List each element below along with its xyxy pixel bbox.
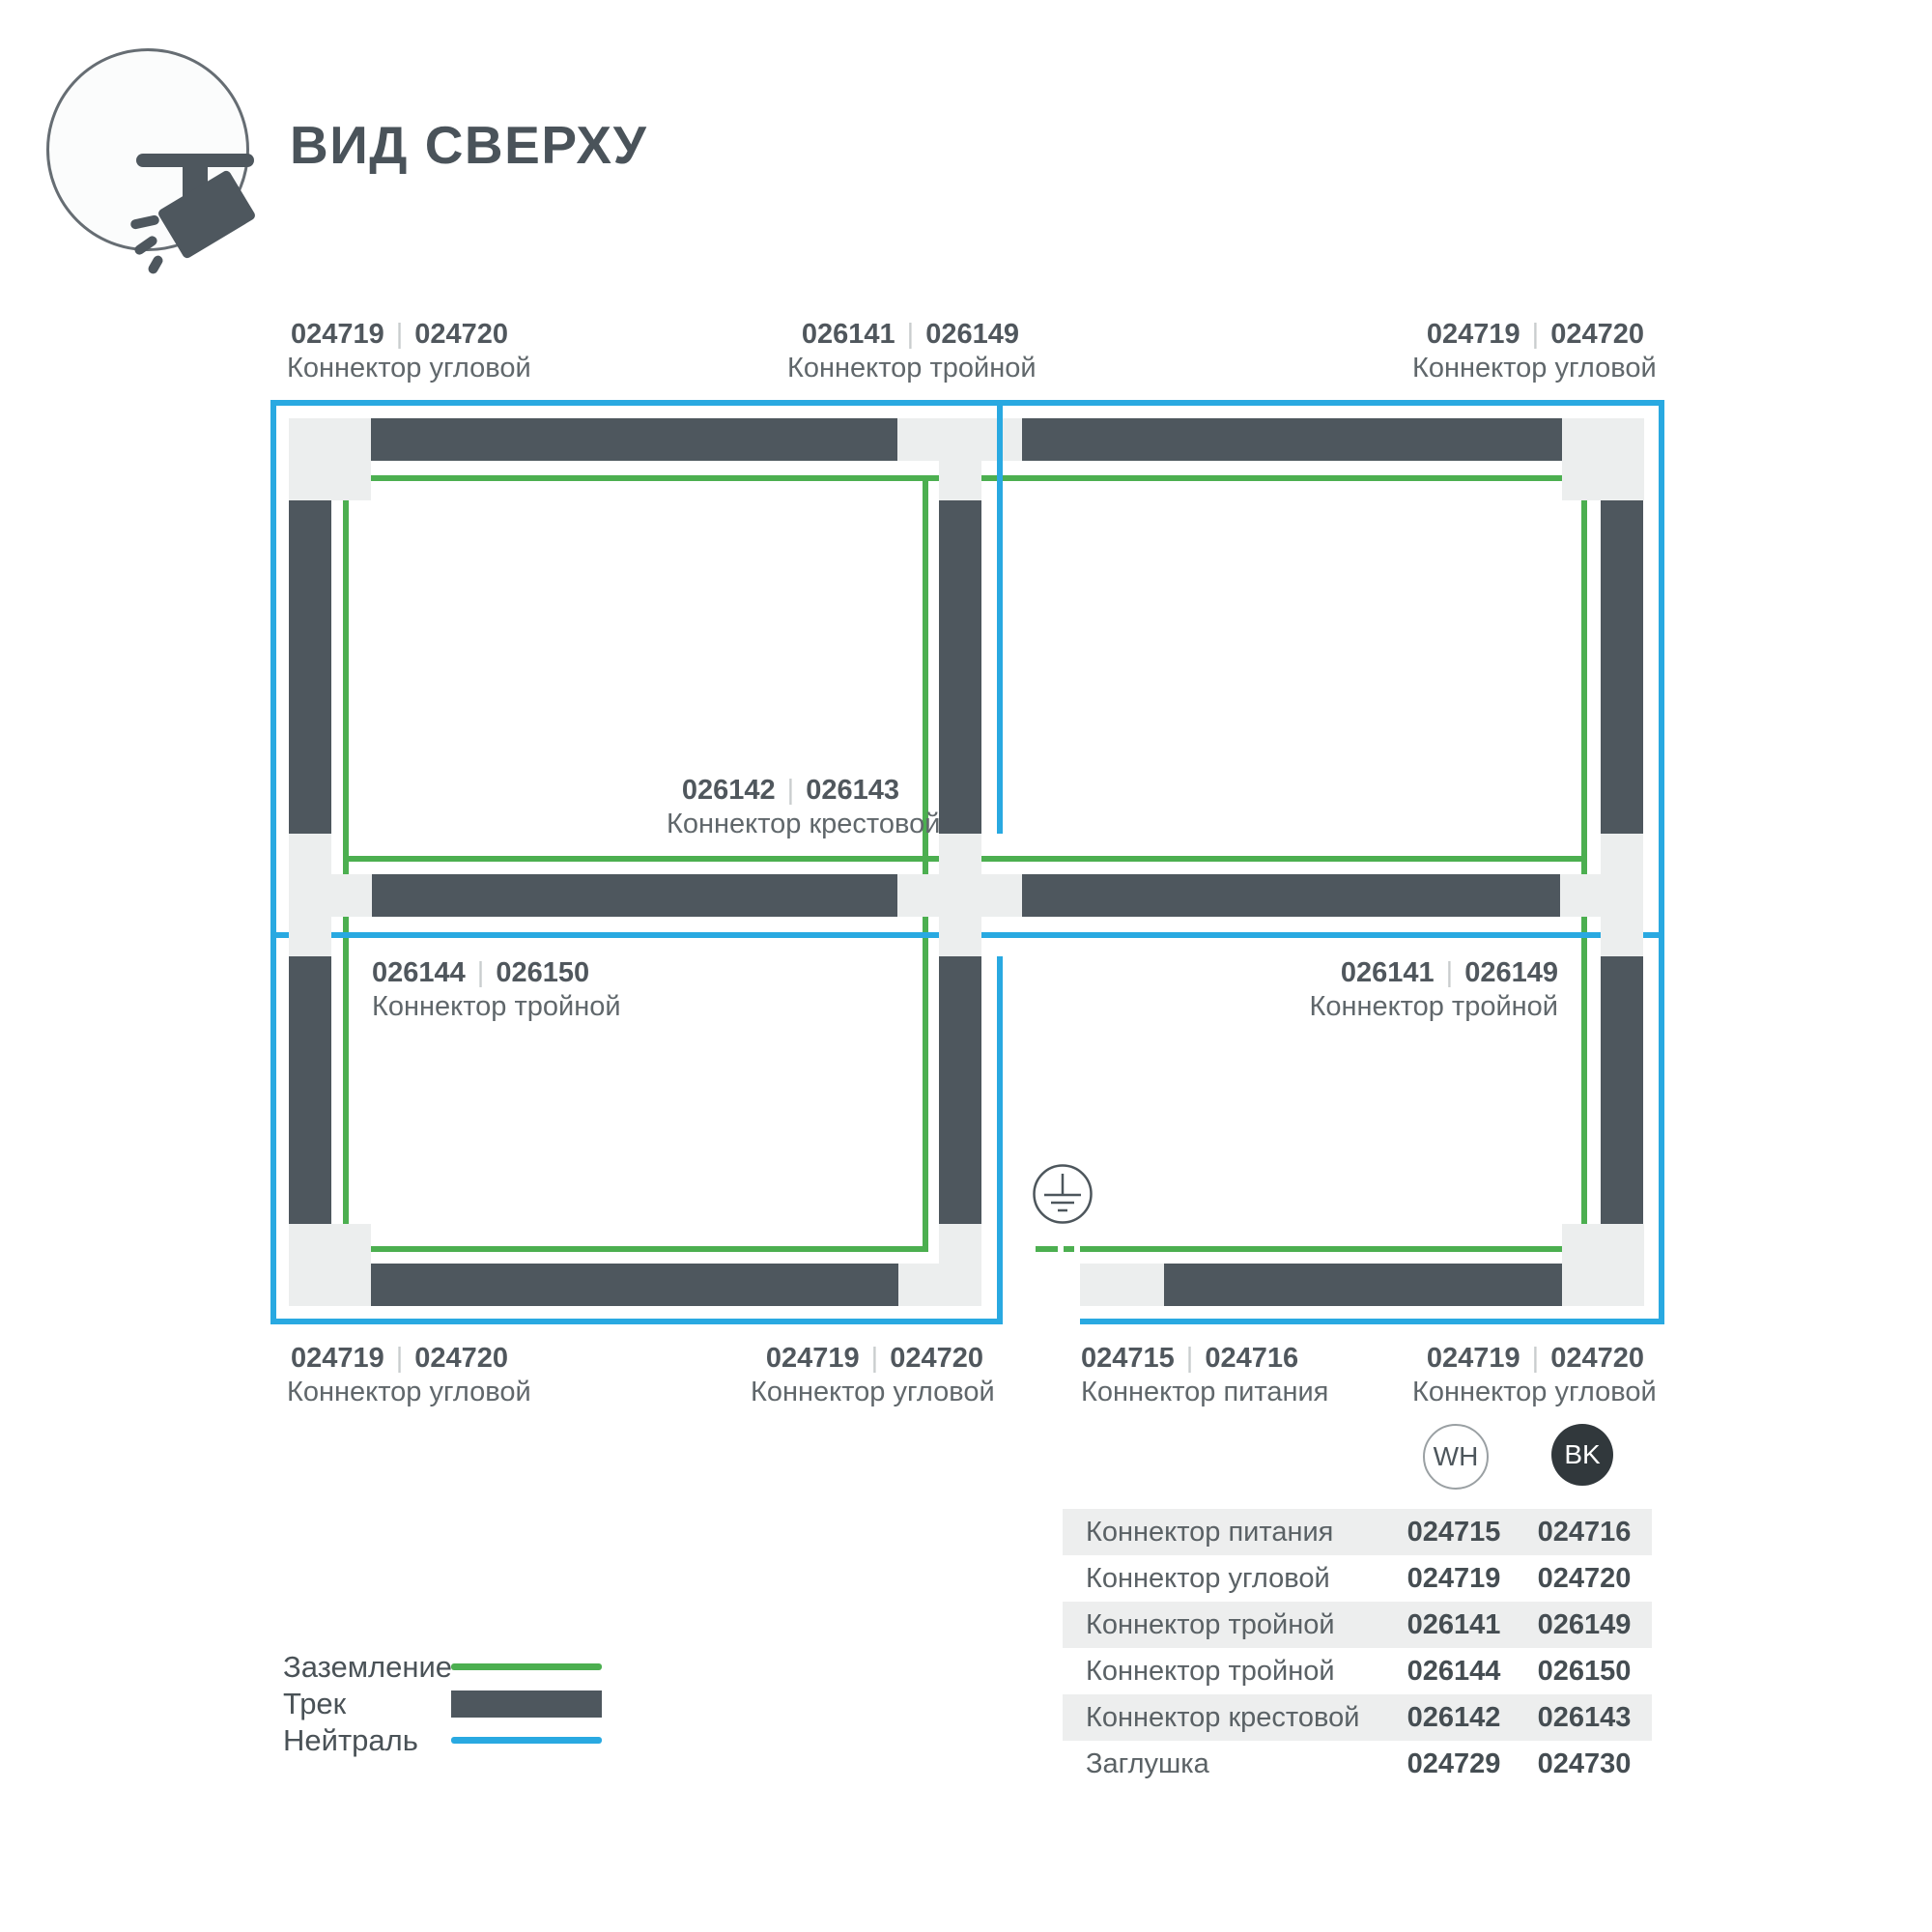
neutral-line-right	[1659, 400, 1664, 1324]
part-name-cell: Коннектор питания	[1063, 1517, 1391, 1548]
callout-corner-connector: 024719|024720 Коннектор угловой	[751, 1343, 983, 1407]
callout-corner-connector: 024719|024720 Коннектор угловой	[1412, 1343, 1644, 1407]
power-connector	[1080, 1264, 1164, 1306]
corner-connector	[289, 418, 371, 500]
track-segment	[1164, 1264, 1562, 1306]
track-segment	[1022, 874, 1561, 917]
callout-triple-connector: 026141|026149 Коннектор тройной	[787, 319, 1019, 384]
wh-code-cell: 024715	[1391, 1517, 1517, 1548]
part-name-cell: Заглушка	[1063, 1748, 1391, 1780]
triple-connector-left	[289, 834, 331, 956]
corner-connector	[1562, 1224, 1644, 1306]
part-name: Коннектор тройной	[1288, 991, 1558, 1022]
neutral-line-bottom-left	[270, 1319, 1003, 1324]
callout-triple-connector: 026141|026149 Коннектор тройной	[1288, 957, 1558, 1022]
part-name: Коннектор питания	[1081, 1377, 1351, 1407]
corner-connector-bottom-center	[898, 1264, 939, 1306]
ground-line-bottom-left	[343, 1246, 928, 1252]
code-separator: |	[1520, 1343, 1551, 1374]
wh-code-cell: 024719	[1391, 1563, 1517, 1595]
parts-table: Коннектор питания 024715 024716 Коннекто…	[1063, 1509, 1652, 1787]
light-ray-icon	[132, 234, 158, 256]
corner-connector	[289, 1224, 371, 1306]
color-badge-black: BK	[1551, 1424, 1613, 1486]
triple-connector-right	[1601, 834, 1643, 956]
legend-ground-swatch	[451, 1663, 602, 1670]
callout-cross-connector: 026142|026143 Коннектор крестовой	[667, 775, 899, 839]
neutral-line-bottom-right	[1080, 1319, 1664, 1324]
neutral-line-top	[270, 400, 1664, 406]
part-name-cell: Коннектор тройной	[1063, 1609, 1391, 1641]
table-row: Коннектор угловой 024719 024720	[1063, 1555, 1652, 1602]
callout-corner-connector: 024719|024720 Коннектор угловой	[287, 319, 512, 384]
legend-label-ground: Заземление	[283, 1650, 452, 1685]
legend-label-neutral: Нейтраль	[283, 1723, 418, 1758]
part-codes: 024719|024720	[1412, 1343, 1644, 1374]
part-codes: 024715|024716	[1081, 1343, 1351, 1374]
triple-connector-top	[939, 461, 981, 500]
bk-code-cell: 024720	[1517, 1563, 1652, 1595]
ground-line-bottom-right	[1080, 1246, 1587, 1252]
callout-corner-connector: 024719|024720 Коннектор угловой	[287, 1343, 512, 1407]
table-row: Коннектор тройной 026144 026150	[1063, 1648, 1652, 1694]
code-separator: |	[776, 775, 807, 806]
legend-neutral-swatch	[451, 1737, 602, 1744]
bk-code-cell: 024716	[1517, 1517, 1652, 1548]
ground-line-dash	[1064, 1246, 1074, 1252]
bk-code-cell: 026143	[1517, 1702, 1652, 1734]
color-badge-white: WH	[1423, 1424, 1489, 1490]
part-name-cell: Коннектор угловой	[1063, 1563, 1391, 1595]
table-row: Коннектор питания 024715 024716	[1063, 1509, 1652, 1555]
bk-code-cell: 026150	[1517, 1656, 1652, 1688]
track-segment	[1022, 418, 1562, 461]
earth-ground-icon	[1032, 1163, 1094, 1225]
code-separator: |	[895, 319, 926, 350]
table-row: Заглушка 024729 024730	[1063, 1741, 1652, 1787]
part-name: Коннектор крестовой	[667, 809, 899, 839]
part-codes: 026141|026149	[787, 319, 1019, 350]
code-separator: |	[860, 1343, 891, 1374]
triple-connector-top	[897, 418, 1022, 461]
track-segment	[939, 500, 981, 834]
part-name: Коннектор тройной	[787, 353, 1019, 384]
light-ray-icon	[129, 214, 159, 230]
legend-track-swatch	[451, 1690, 602, 1718]
wh-code-cell: 026142	[1391, 1702, 1517, 1734]
part-name: Коннектор угловой	[287, 353, 512, 384]
code-separator: |	[1520, 319, 1551, 350]
neutral-line-middle-vertical	[997, 400, 1003, 834]
wh-code-cell: 024729	[1391, 1748, 1517, 1780]
part-name: Коннектор угловой	[1412, 353, 1644, 384]
callout-triple-connector: 026144|026150 Коннектор тройной	[372, 957, 642, 1022]
code-separator: |	[384, 319, 415, 350]
code-separator: |	[1435, 957, 1465, 988]
table-row: Коннектор тройной 026141 026149	[1063, 1602, 1652, 1648]
page-title: ВИД СВЕРХУ	[290, 114, 647, 176]
legend-label-track: Трек	[283, 1687, 346, 1721]
part-codes: 026142|026143	[667, 775, 899, 806]
track-segment	[289, 500, 331, 834]
code-separator: |	[1175, 1343, 1206, 1374]
track-segment	[939, 956, 981, 1224]
code-separator: |	[384, 1343, 415, 1374]
part-name: Коннектор угловой	[1412, 1377, 1644, 1407]
part-name-cell: Коннектор тройной	[1063, 1656, 1391, 1688]
track-segment	[371, 1264, 898, 1306]
triple-connector-left	[331, 874, 372, 917]
part-name: Коннектор угловой	[287, 1377, 512, 1407]
neutral-line-middle-vertical	[997, 956, 1003, 1324]
callout-corner-connector: 024719|024720 Коннектор угловой	[1412, 319, 1644, 384]
wh-code-cell: 026144	[1391, 1656, 1517, 1688]
code-separator: |	[466, 957, 497, 988]
part-name: Коннектор тройной	[372, 991, 642, 1022]
track-spotlight-icon	[46, 48, 249, 251]
part-codes: 024719|024720	[287, 1343, 512, 1374]
part-codes: 024719|024720	[751, 1343, 983, 1374]
wh-code-cell: 026141	[1391, 1609, 1517, 1641]
neutral-line-left	[270, 400, 276, 1324]
track-segment	[371, 874, 898, 917]
track-segment	[371, 418, 897, 461]
part-codes: 024719|024720	[1412, 319, 1644, 350]
track-segment	[289, 956, 331, 1224]
table-row: Коннектор крестовой 026142 026143	[1063, 1694, 1652, 1741]
spotlight-head-icon-part	[156, 169, 257, 260]
bk-code-cell: 024730	[1517, 1748, 1652, 1780]
ground-line-right	[1581, 475, 1587, 1252]
track-segment	[1601, 500, 1643, 834]
part-codes: 026144|026150	[372, 957, 642, 988]
corner-connector-bottom-center	[939, 1224, 981, 1306]
part-codes: 024719|024720	[287, 319, 512, 350]
part-codes: 026141|026149	[1288, 957, 1558, 988]
ground-line-left	[343, 475, 349, 1252]
triple-connector-right	[1560, 874, 1601, 917]
ground-line-dash	[1036, 1246, 1058, 1252]
bk-code-cell: 026149	[1517, 1609, 1652, 1641]
ground-line-middle-vertical	[923, 475, 928, 1252]
light-ray-icon	[147, 254, 165, 275]
callout-power-connector: 024715|024716 Коннектор питания	[1081, 1343, 1351, 1407]
corner-connector	[1562, 418, 1644, 500]
track-segment	[1601, 956, 1643, 1224]
cross-connector	[939, 834, 981, 956]
part-name: Коннектор угловой	[751, 1377, 983, 1407]
part-name-cell: Коннектор крестовой	[1063, 1702, 1391, 1734]
